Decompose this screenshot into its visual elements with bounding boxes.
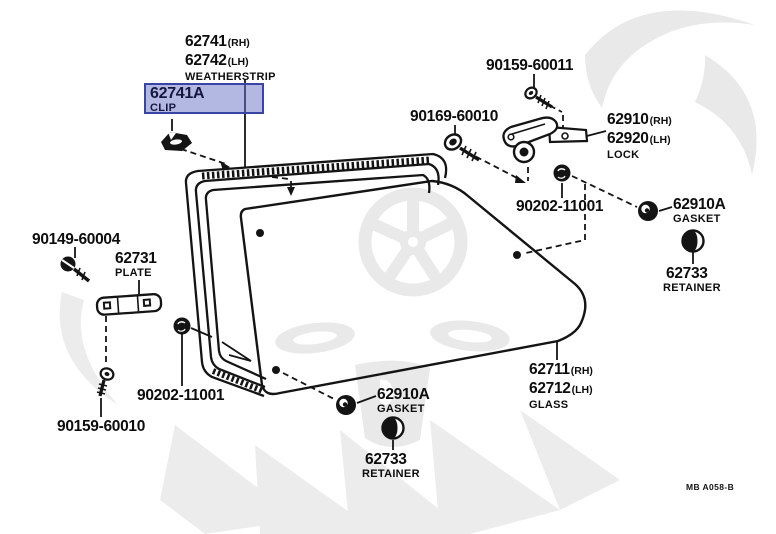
part-number: 62733 (365, 451, 420, 468)
part-name: GASKET (673, 213, 726, 225)
part-number: 62910A (377, 386, 430, 403)
part-side: (RH) (228, 37, 250, 49)
label-screw-plate[interactable]: 90149-60004 (32, 231, 120, 248)
part-number-row: 62712(LH) (529, 380, 593, 399)
part-side: (RH) (650, 115, 672, 127)
part-number-row: 62711(RH) (529, 361, 593, 380)
glass-hole (256, 229, 264, 237)
screw-upper-part (523, 85, 552, 109)
nut-upper-part (554, 165, 571, 182)
plate-part (97, 294, 162, 315)
label-retainer-lower[interactable]: 62733 RETAINER (365, 451, 420, 480)
part-name: WEATHERSTRIP (185, 71, 276, 83)
glass-hole (272, 366, 280, 374)
part-number-row: 62741(RH) (185, 33, 276, 52)
part-number: 90169-60010 (410, 108, 498, 125)
part-number: 90202-11001 (137, 387, 224, 404)
part-number-row: 62920(LH) (607, 130, 672, 149)
part-number: 62711 (529, 361, 570, 378)
label-retainer-upper[interactable]: 62733 RETAINER (666, 265, 721, 294)
part-side: (LH) (572, 384, 593, 396)
part-name: RETAINER (663, 282, 721, 294)
label-weatherstrip[interactable]: 62741(RH) 62742(LH) WEATHERSTRIP (185, 33, 276, 83)
part-side: (LH) (228, 56, 249, 68)
part-number: 90159-60010 (57, 418, 145, 435)
part-number-row: 62910(RH) (607, 111, 672, 130)
label-screw-lower[interactable]: 90159-60010 (57, 418, 145, 435)
part-number-row: 62742(LH) (185, 52, 276, 71)
label-glass[interactable]: 62711(RH) 62712(LH) GLASS (529, 361, 593, 411)
part-name: GLASS (529, 399, 593, 411)
part-number: 62741 (185, 33, 227, 50)
open-arrow (222, 342, 251, 361)
label-bolt[interactable]: 90169-60010 (410, 108, 498, 125)
label-plate[interactable]: 62731 PLATE (115, 250, 157, 279)
screw-plate-part (61, 257, 90, 282)
label-screw-upper[interactable]: 90159-60011 (486, 57, 573, 74)
part-name: LOCK (607, 149, 672, 161)
drawing-code: MB A058-B (686, 482, 734, 492)
gasket-upper-part (638, 201, 658, 221)
part-number: 62910 (607, 111, 649, 128)
label-nut-upper[interactable]: 90202-11001 (516, 198, 603, 215)
retainer-lower-part (383, 418, 404, 439)
part-number: 62712 (529, 380, 571, 397)
label-nut-lower[interactable]: 90202-11001 (137, 387, 224, 404)
bolt-part (442, 131, 479, 161)
gasket-lower-part (336, 395, 356, 415)
label-clip-number[interactable]: 62741A CLIP (150, 85, 204, 114)
part-number: 62733 (666, 265, 721, 282)
part-name: RETAINER (362, 468, 420, 480)
part-number: 62741A (150, 85, 204, 102)
part-name: GASKET (377, 403, 430, 415)
parts-diagram-canvas: 62741(RH) 62742(LH) WEATHERSTRIP 62741A … (0, 0, 776, 534)
label-lock[interactable]: 62910(RH) 62920(LH) LOCK (607, 111, 672, 161)
part-number: 90202-11001 (516, 198, 603, 215)
label-gasket-upper[interactable]: 62910A GASKET (673, 196, 726, 225)
part-number: 62910A (673, 196, 726, 213)
part-number: 62920 (607, 130, 649, 147)
part-number: 90159-60011 (486, 57, 573, 74)
part-number: 62742 (185, 52, 227, 69)
part-number: 90149-60004 (32, 231, 120, 248)
lock-part (503, 118, 587, 162)
part-name: PLATE (115, 267, 157, 279)
part-number: 62731 (115, 250, 157, 267)
part-name: CLIP (150, 102, 204, 114)
part-side: (RH) (571, 365, 593, 377)
nut-lower-part (174, 318, 191, 335)
glass-hole (513, 251, 521, 259)
retainer-upper-part (683, 231, 704, 252)
part-side: (LH) (650, 134, 671, 146)
clip-part (161, 132, 192, 151)
label-gasket-lower[interactable]: 62910A GASKET (377, 386, 430, 415)
